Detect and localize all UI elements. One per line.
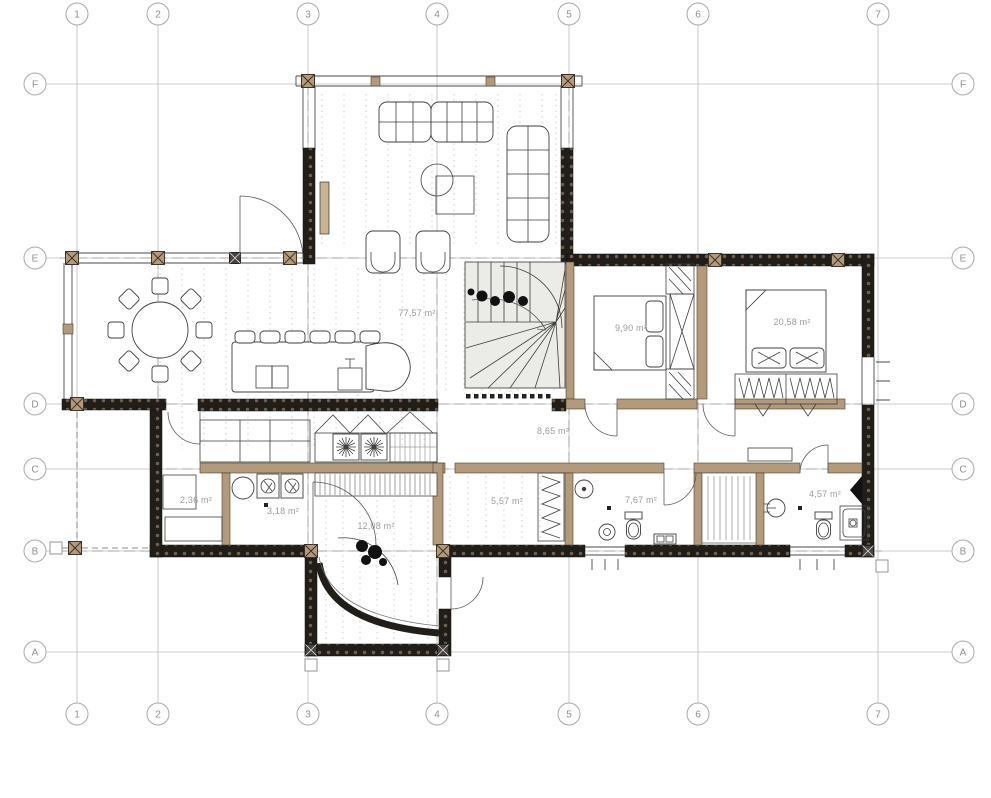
wardrobe-master — [735, 374, 837, 416]
room-label-entrance-hall: 12,08 m² — [357, 521, 394, 531]
grid-row-bubbles-left: F E D C B A — [24, 73, 46, 663]
armchair — [366, 231, 400, 273]
grid-col-label: 2 — [155, 710, 161, 721]
grid-col-label: 4 — [434, 710, 440, 721]
grid-column-bubbles-top: 1 2 3 4 5 6 7 — [66, 3, 889, 25]
wall-south-mid1 — [437, 545, 585, 557]
wall-porch-east-upper — [439, 557, 451, 577]
grid-col-label: 7 — [875, 10, 881, 21]
wall-porch-south — [305, 644, 451, 656]
room-label-pantry: 2,36 m² — [180, 495, 212, 505]
wall-bath-divider — [694, 473, 702, 545]
wall-row-c-left — [200, 463, 445, 473]
grid-row-label: F — [960, 80, 966, 91]
room-label-great-room: 77,57 m² — [398, 308, 435, 318]
living-room — [366, 102, 549, 273]
wall-row-d-stub — [552, 399, 566, 411]
wall-bath2-divider — [756, 473, 764, 545]
room-label-bedroom-small: 9,90 m² — [615, 323, 647, 333]
grid-col-label: 4 — [434, 10, 440, 21]
corridor-wardrobe — [538, 473, 564, 541]
grid-row-label: D — [31, 400, 38, 411]
staircase — [465, 262, 565, 388]
grid-row-label: C — [31, 465, 38, 476]
grid-column-bubbles-bottom: 1 2 3 4 5 6 7 — [66, 703, 889, 725]
room-label-utility: 3,18 m² — [267, 506, 299, 516]
cooktop-burner — [333, 434, 359, 460]
wall-row-c-right — [694, 463, 800, 473]
room-label-corridor: 5,57 m² — [491, 496, 523, 506]
wall-bed1-south-a — [566, 399, 585, 409]
floor-marker — [607, 506, 611, 510]
grid-row-label: E — [32, 254, 39, 265]
island-curved-end — [366, 343, 410, 391]
grid-col-label: 7 — [875, 710, 881, 721]
wall-south-mid2 — [625, 545, 790, 557]
grid-row-bubbles-right: F E D C B A — [952, 73, 974, 663]
wardrobe — [666, 264, 694, 399]
bathroom-1 — [575, 480, 676, 544]
washing-machine — [257, 474, 279, 498]
grid-col-label: 3 — [305, 10, 311, 21]
armchair — [416, 231, 450, 273]
wall-west-left-wing — [150, 410, 162, 557]
plant — [356, 540, 387, 566]
kitchen — [200, 331, 437, 462]
door-pantry — [168, 412, 200, 444]
wall-pantry-divider — [222, 473, 230, 545]
sofa-chaise — [507, 126, 549, 242]
grid-row-label: C — [959, 465, 966, 476]
window-wall-north — [296, 76, 582, 86]
floor-plan-drawing: 1 2 3 4 5 6 7 1 2 3 4 5 6 7 F E D C B A … — [0, 0, 991, 798]
entrance-hall — [338, 538, 398, 585]
dryer — [281, 474, 303, 498]
grid-col-label: 5 — [566, 710, 572, 721]
grid-col-label: 2 — [155, 10, 161, 21]
grid-row-label: B — [960, 547, 967, 558]
grid-col-label: 1 — [74, 10, 80, 21]
pantry-counter — [165, 517, 222, 541]
wall-row-c-end — [828, 463, 862, 473]
hall-bench — [748, 448, 792, 461]
cooktop-burner — [361, 434, 387, 460]
room-label-bedroom-master: 20,58 m² — [773, 317, 810, 327]
wall-bed1-south-b — [617, 399, 697, 409]
grid-row-label: E — [960, 254, 967, 265]
wall-living-west — [303, 148, 315, 264]
room-label-bathroom-2: 4,57 m² — [809, 489, 841, 499]
toilet — [625, 512, 642, 539]
wall-niche — [850, 476, 862, 504]
coffee-table — [421, 164, 474, 214]
wall-east-upper — [862, 254, 874, 357]
dining-table — [132, 302, 188, 358]
wall-row-d-kitchen — [198, 399, 438, 411]
sofa-modular — [379, 102, 493, 142]
room-label-hall: 8,65 m² — [537, 426, 569, 436]
door-bedroom-small — [585, 404, 617, 436]
bathroom-2 — [748, 448, 868, 540]
door-living-dining — [240, 196, 303, 259]
door-bedroom-master — [703, 404, 735, 436]
toilet — [815, 512, 832, 539]
boiler — [232, 477, 254, 499]
grid-row-label: A — [32, 648, 39, 659]
grid-col-label: 1 — [74, 710, 80, 721]
wall-porch-west — [305, 545, 317, 656]
grid-col-label: 6 — [695, 10, 701, 21]
bar-stools — [235, 331, 380, 343]
entry-step-strip — [315, 473, 437, 496]
pillow — [646, 301, 663, 332]
floor-marker — [798, 506, 802, 510]
grid-col-label: 6 — [695, 710, 701, 721]
grid-row-label: A — [960, 648, 967, 659]
stair-railing-dots — [466, 394, 551, 399]
pillow — [646, 336, 663, 367]
grid-col-label: 5 — [566, 10, 572, 21]
slatted-closet — [702, 473, 756, 543]
floor-plan-canvas: 1 2 3 4 5 6 7 1 2 3 4 5 6 7 F E D C B A … — [0, 0, 991, 798]
bedroom-master — [735, 290, 837, 416]
wall-living-east — [561, 148, 573, 264]
dining-area — [108, 278, 212, 382]
grid-col-label: 3 — [305, 710, 311, 721]
curved-log-wall — [319, 563, 439, 633]
wall-south-left — [150, 545, 317, 557]
grid-row-label: F — [32, 80, 38, 91]
curved-wall-inner-line — [319, 557, 440, 626]
wall-between-bedrooms — [697, 266, 707, 399]
wall-porch-east-lower — [439, 609, 451, 644]
wall-stair-east — [566, 262, 574, 399]
kitchen-island — [232, 331, 410, 392]
wall-corridor-divider — [565, 473, 573, 545]
room-label-bathroom: 7,67 m² — [625, 495, 657, 505]
floor-drain — [599, 524, 615, 540]
cabinet-hatch — [390, 433, 437, 462]
kitchen-wall-counter — [200, 412, 437, 462]
door-bathroom — [664, 473, 696, 505]
door-entrance — [451, 577, 483, 609]
wall-row-c-mid — [455, 463, 664, 473]
grid-row-label: D — [959, 400, 966, 411]
fireplace — [320, 182, 329, 234]
grid-row-label: B — [32, 547, 39, 558]
